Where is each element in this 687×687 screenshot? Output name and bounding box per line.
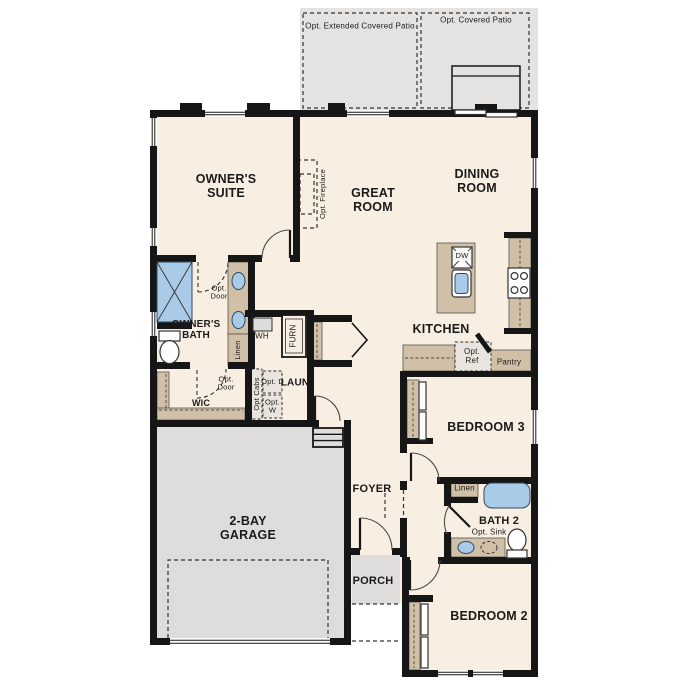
label-foyer: FOYER: [353, 483, 392, 495]
label-opt-extended-patio: Opt. Extended Covered Patio: [304, 23, 416, 32]
label-pantry: Pantry: [497, 359, 521, 368]
label-opt-ref: Opt. Ref: [458, 348, 486, 366]
label-laundry: LAUN: [281, 377, 310, 388]
label-linen-bath2: Linen: [454, 485, 475, 494]
label-opt-door-bath: Opt. Door: [202, 285, 236, 302]
label-opt-sink: Opt. Sink: [472, 529, 507, 538]
label-wic: WIC: [192, 398, 210, 408]
label-opt-cabs: Opt Cabs: [252, 377, 260, 410]
label-bedroom3: BEDROOM 3: [447, 420, 525, 434]
label-opt-covered-patio: Opt. Covered Patio: [440, 17, 512, 26]
label-wh: WH: [255, 333, 269, 342]
label-great-room: GREAT ROOM: [341, 186, 405, 214]
label-porch: PORCH: [353, 575, 394, 587]
label-dining-room: DINING ROOM: [441, 167, 513, 195]
label-linen-owners: Linen: [234, 340, 242, 359]
label-bath2: BATH 2: [479, 515, 519, 527]
labels-layer: Opt. Extended Covered Patio Opt. Covered…: [0, 0, 687, 687]
floor-plan-page: Opt. Extended Covered Patio Opt. Covered…: [0, 0, 687, 687]
label-owners-bath: OWNER'S BATH: [161, 319, 231, 341]
label-opt-door-wic: Opt. Door: [209, 376, 243, 393]
label-owners-suite: OWNER'S SUITE: [180, 172, 272, 200]
label-opt-fireplace: Opt. Fireplace: [319, 169, 327, 219]
label-bedroom2: BEDROOM 2: [450, 609, 528, 623]
label-furnace: FURN: [290, 324, 299, 347]
label-garage: 2-BAY GARAGE: [209, 514, 287, 542]
label-dishwasher: DW: [456, 252, 469, 260]
label-opt-washer: Opt. W: [261, 398, 285, 415]
label-kitchen: KITCHEN: [413, 322, 470, 336]
